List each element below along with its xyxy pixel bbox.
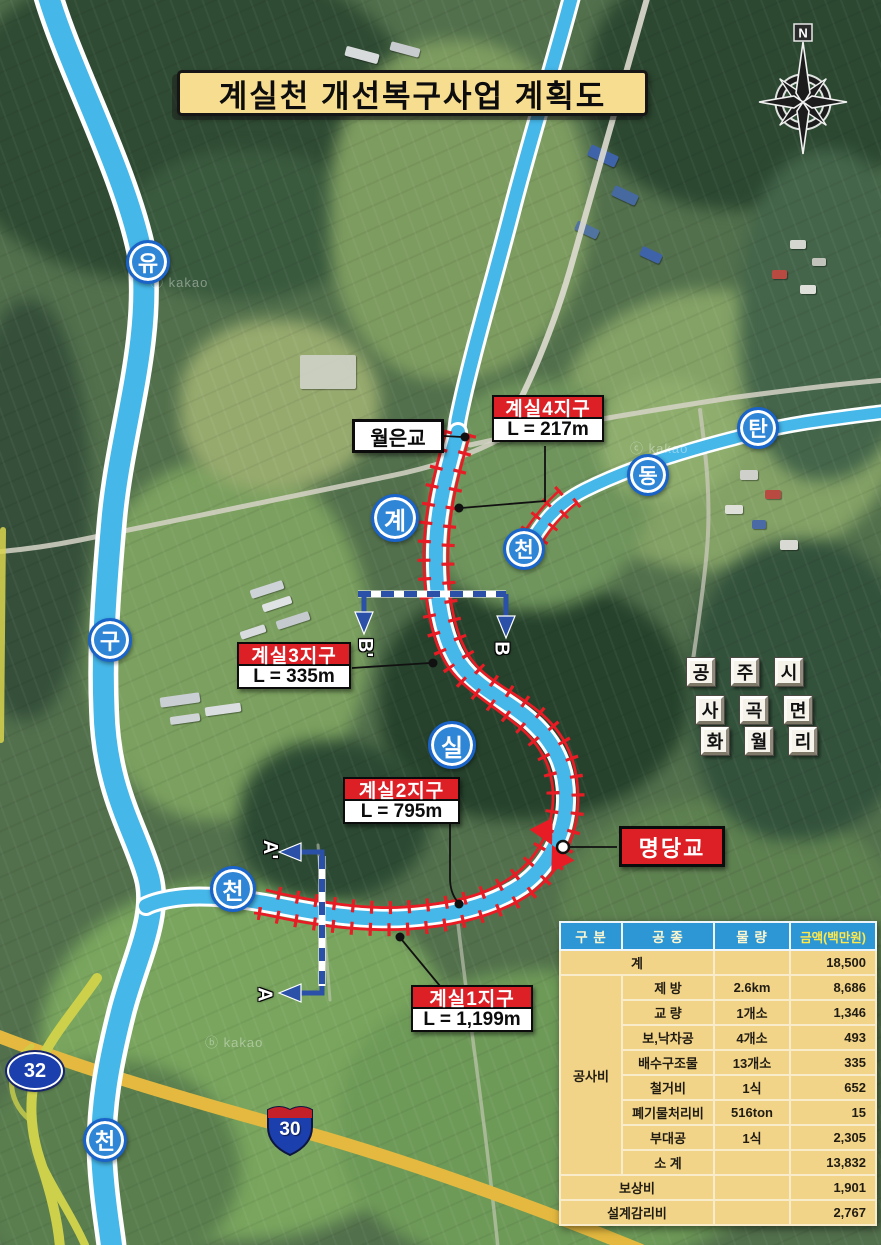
river-marker-gu: 구: [88, 618, 132, 662]
district-length: L = 335m: [239, 666, 349, 687]
table-row: 공사비 제 방 2.6km 8,686: [560, 975, 876, 1000]
header-quantity: 물 량: [714, 922, 790, 950]
section-label-b-prime: B': [353, 638, 376, 657]
qty-cell: 2.6km: [714, 975, 790, 1000]
marker-char: 실: [441, 728, 463, 763]
marker-char: 구: [100, 624, 120, 656]
district-length: L = 217m: [494, 419, 602, 440]
route-30-sign: 30: [266, 1103, 314, 1157]
qty-cell: [714, 1200, 790, 1225]
river-marker-gye: 계: [371, 494, 419, 542]
amount-cell: 2,305: [790, 1125, 876, 1150]
total-amount: 18,500: [790, 950, 876, 975]
work-cell: 부대공: [622, 1125, 714, 1150]
callout-district-4: 계실4지구 L = 217m: [492, 395, 604, 442]
work-cell: 폐기물처리비: [622, 1100, 714, 1125]
callout-district-1: 계실1지구 L = 1,199m: [411, 985, 533, 1032]
qty-cell: 516ton: [714, 1100, 790, 1125]
district-length: L = 1,199m: [413, 1009, 531, 1030]
river-marker-cheon-yugu: 천: [83, 1118, 127, 1162]
work-cell: 배수구조물: [622, 1050, 714, 1075]
admin-label-row-si: 공 주 시: [687, 658, 803, 686]
river-marker-yu: 유: [126, 240, 170, 284]
compass-rose: N: [756, 24, 849, 154]
map-watermark: ⓒ kakao: [630, 438, 688, 457]
table-row-compensation: 보상비 1,901: [560, 1175, 876, 1200]
qty-cell: 1식: [714, 1075, 790, 1100]
header-category: 구 분: [560, 922, 622, 950]
marker-char: 탄: [748, 413, 767, 443]
work-cell: 보,낙차공: [622, 1025, 714, 1050]
amount-cell: 335: [790, 1050, 876, 1075]
river-marker-dong: 동: [627, 454, 669, 496]
page-title: 계실천 개선복구사업 계획도: [177, 70, 648, 116]
district-name: 계실3지구: [239, 644, 349, 666]
admin-tile: 사: [696, 696, 724, 724]
district-name: 계실2지구: [345, 779, 458, 801]
qty-cell: 4개소: [714, 1025, 790, 1050]
admin-tile: 곡: [740, 696, 768, 724]
header-work: 공 종: [622, 922, 714, 950]
amount-cell: 2,767: [790, 1200, 876, 1225]
amount-cell: 8,686: [790, 975, 876, 1000]
qty-cell: 1식: [714, 1125, 790, 1150]
section-label-b: B: [490, 641, 513, 655]
admin-tile: 면: [784, 696, 812, 724]
admin-tile: 공: [687, 658, 715, 686]
route-32-sign: 32: [7, 1052, 63, 1090]
marker-char: 계: [384, 501, 406, 536]
table-row-design: 설계감리비 2,767: [560, 1200, 876, 1225]
marker-char: 천: [514, 534, 533, 564]
amount-cell: 13,832: [790, 1150, 876, 1175]
work-cell: 철거비: [622, 1075, 714, 1100]
river-marker-tan: 탄: [737, 407, 779, 449]
plan-map: N ⓑ kakao ⓒ kakao ⓑ kakao 계실천 개선복구사업 계획도…: [0, 0, 881, 1245]
admin-tile: 리: [789, 727, 817, 755]
work-cell: 소 계: [622, 1150, 714, 1175]
admin-tile: 월: [745, 727, 773, 755]
qty-cell: 13개소: [714, 1050, 790, 1075]
qty-cell: [714, 1150, 790, 1175]
admin-label-row-myeon: 사 곡 면: [696, 696, 812, 724]
district-name: 계실1지구: [413, 987, 531, 1009]
river-marker-sil: 실: [428, 721, 476, 769]
amount-cell: 1,346: [790, 1000, 876, 1025]
footer-label: 보상비: [560, 1175, 714, 1200]
marker-char: 천: [95, 1124, 115, 1156]
river-marker-cheon-tandong: 천: [503, 528, 545, 570]
map-watermark: ⓑ kakao: [205, 1032, 263, 1051]
admin-tile: 시: [775, 658, 803, 686]
header-amount: 금액(백만원): [790, 922, 876, 950]
marker-char: 동: [638, 460, 657, 490]
qty-cell: [714, 1175, 790, 1200]
river-marker-cheon-gyesil: 천: [210, 866, 256, 912]
callout-district-2: 계실2지구 L = 795m: [343, 777, 460, 824]
callout-district-3: 계실3지구 L = 335m: [237, 642, 351, 689]
admin-tile: 화: [701, 727, 729, 755]
qty-cell: 1개소: [714, 1000, 790, 1025]
admin-tile: 주: [731, 658, 759, 686]
construction-label: 공사비: [560, 975, 622, 1175]
district-length: L = 795m: [345, 801, 458, 822]
river-gyesilcheon-upstream: [455, 0, 572, 445]
marker-char: 천: [222, 872, 243, 906]
amount-cell: 1,901: [790, 1175, 876, 1200]
route-number: 30: [266, 1119, 314, 1141]
total-qty: [714, 950, 790, 975]
total-label: 계: [560, 950, 714, 975]
table-row-total: 계 18,500: [560, 950, 876, 975]
district-name: 계실4지구: [494, 397, 602, 419]
amount-cell: 652: [790, 1075, 876, 1100]
amount-cell: 15: [790, 1100, 876, 1125]
table-header-row: 구 분 공 종 물 량 금액(백만원): [560, 922, 876, 950]
work-cell: 제 방: [622, 975, 714, 1000]
admin-label-row-ri: 화 월 리: [701, 727, 817, 755]
section-label-a: A: [253, 987, 276, 1001]
cost-summary-table: 구 분 공 종 물 량 금액(백만원) 계 18,500 공사비 제 방 2.6…: [559, 921, 877, 1226]
section-label-a-prime: A': [258, 840, 281, 859]
marker-char: 유: [138, 246, 158, 278]
work-cell: 교 량: [622, 1000, 714, 1025]
route-number: 32: [24, 1060, 46, 1083]
callout-myeongdang-bridge: 명당교: [619, 826, 725, 867]
footer-label: 설계감리비: [560, 1200, 714, 1225]
amount-cell: 493: [790, 1025, 876, 1050]
callout-woleun-bridge: 월은교: [352, 419, 444, 453]
compass-north-label: N: [798, 26, 807, 41]
